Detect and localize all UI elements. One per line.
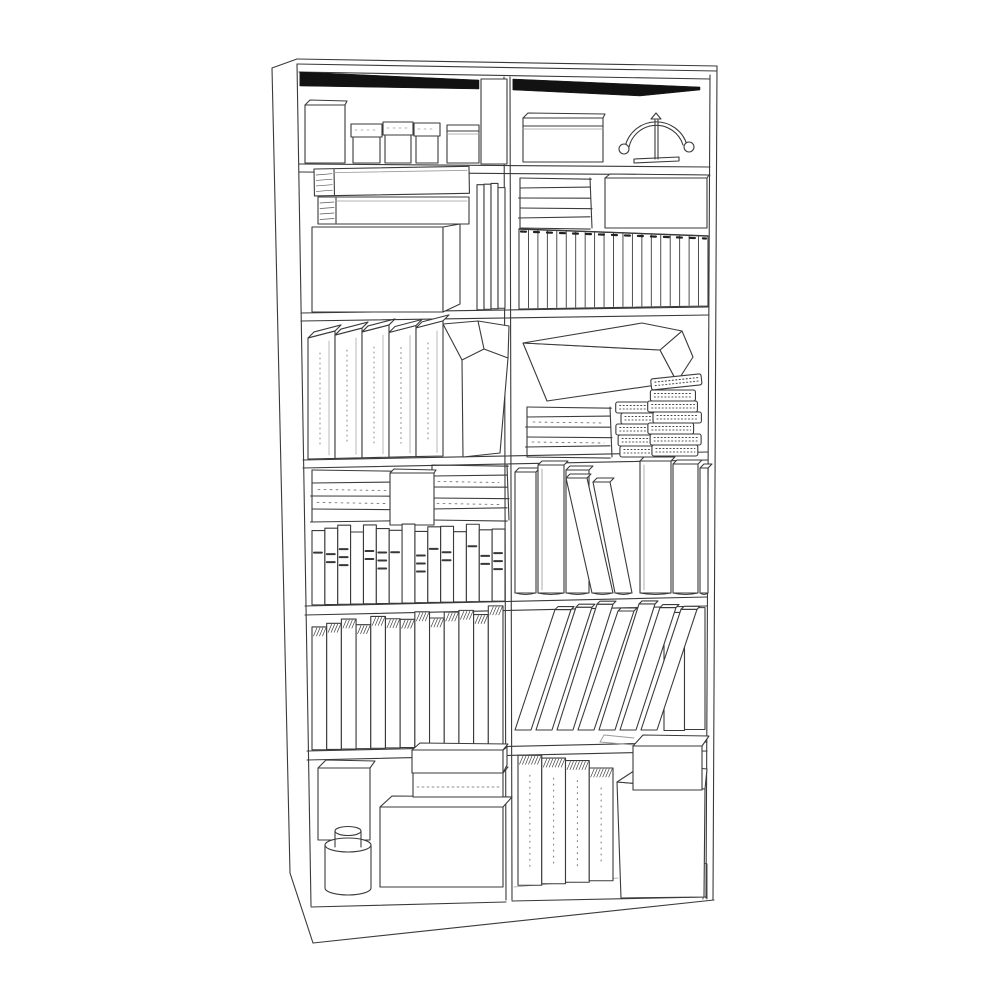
shelf-4-left bbox=[310, 465, 509, 605]
medium-box bbox=[447, 125, 479, 163]
paperback-row bbox=[312, 606, 503, 750]
flat-box-upper bbox=[412, 743, 508, 773]
arc-desk-lamp bbox=[619, 113, 694, 163]
tall-storage-box bbox=[305, 100, 347, 163]
small-lidded-box-1 bbox=[351, 124, 382, 163]
small-lidded-box-2 bbox=[383, 122, 413, 163]
tall-box-full-height bbox=[481, 79, 507, 164]
shelf-3-left bbox=[308, 315, 509, 459]
notebook bbox=[648, 401, 698, 412]
stacked-book-upper bbox=[314, 166, 469, 196]
stacked-book-lower bbox=[318, 197, 469, 224]
bookshelf-illustration bbox=[0, 0, 1000, 1000]
small-box-front bbox=[390, 469, 436, 525]
wide-box bbox=[605, 174, 709, 228]
shelf-6-left bbox=[318, 743, 512, 895]
flat-box-stack-right bbox=[430, 465, 509, 521]
large-box bbox=[312, 224, 460, 312]
shelf-2-right bbox=[518, 174, 709, 309]
thin-upright-books bbox=[477, 183, 505, 309]
lidded-gift-box bbox=[523, 113, 605, 162]
notebook bbox=[653, 412, 701, 423]
magazine-row bbox=[519, 229, 708, 309]
book-body bbox=[318, 197, 469, 224]
shelf-6-right bbox=[518, 735, 709, 898]
shelf-1-left bbox=[305, 79, 507, 164]
shelf-1-right bbox=[523, 113, 694, 163]
shelf-4-right bbox=[515, 457, 712, 595]
large-books bbox=[518, 755, 613, 885]
magazine-file bbox=[443, 321, 509, 457]
shelf-2-left bbox=[312, 166, 505, 312]
flat-box-stack-left bbox=[310, 470, 396, 522]
notebook bbox=[650, 390, 695, 401]
top-shadow-right bbox=[513, 79, 700, 96]
shelf-3-right bbox=[523, 323, 702, 458]
small-lidded-box-3 bbox=[414, 123, 440, 163]
shelf-5-left bbox=[312, 606, 503, 750]
long-wedge-box bbox=[523, 323, 693, 401]
flat-box-stack bbox=[525, 407, 612, 458]
book-body bbox=[314, 166, 469, 196]
slim-case-row bbox=[312, 524, 505, 605]
notebook bbox=[648, 423, 694, 434]
shelf-5-right bbox=[515, 601, 705, 731]
page bbox=[0, 0, 1000, 1000]
ring-binders bbox=[308, 315, 449, 459]
tall-books bbox=[515, 457, 712, 595]
notebook bbox=[650, 434, 701, 445]
flat-book-stack bbox=[518, 178, 592, 229]
large-box bbox=[380, 796, 512, 887]
small-box-on-platform bbox=[633, 735, 709, 790]
notebook bbox=[652, 445, 698, 456]
spiral-notebook-stack-right bbox=[648, 374, 702, 456]
